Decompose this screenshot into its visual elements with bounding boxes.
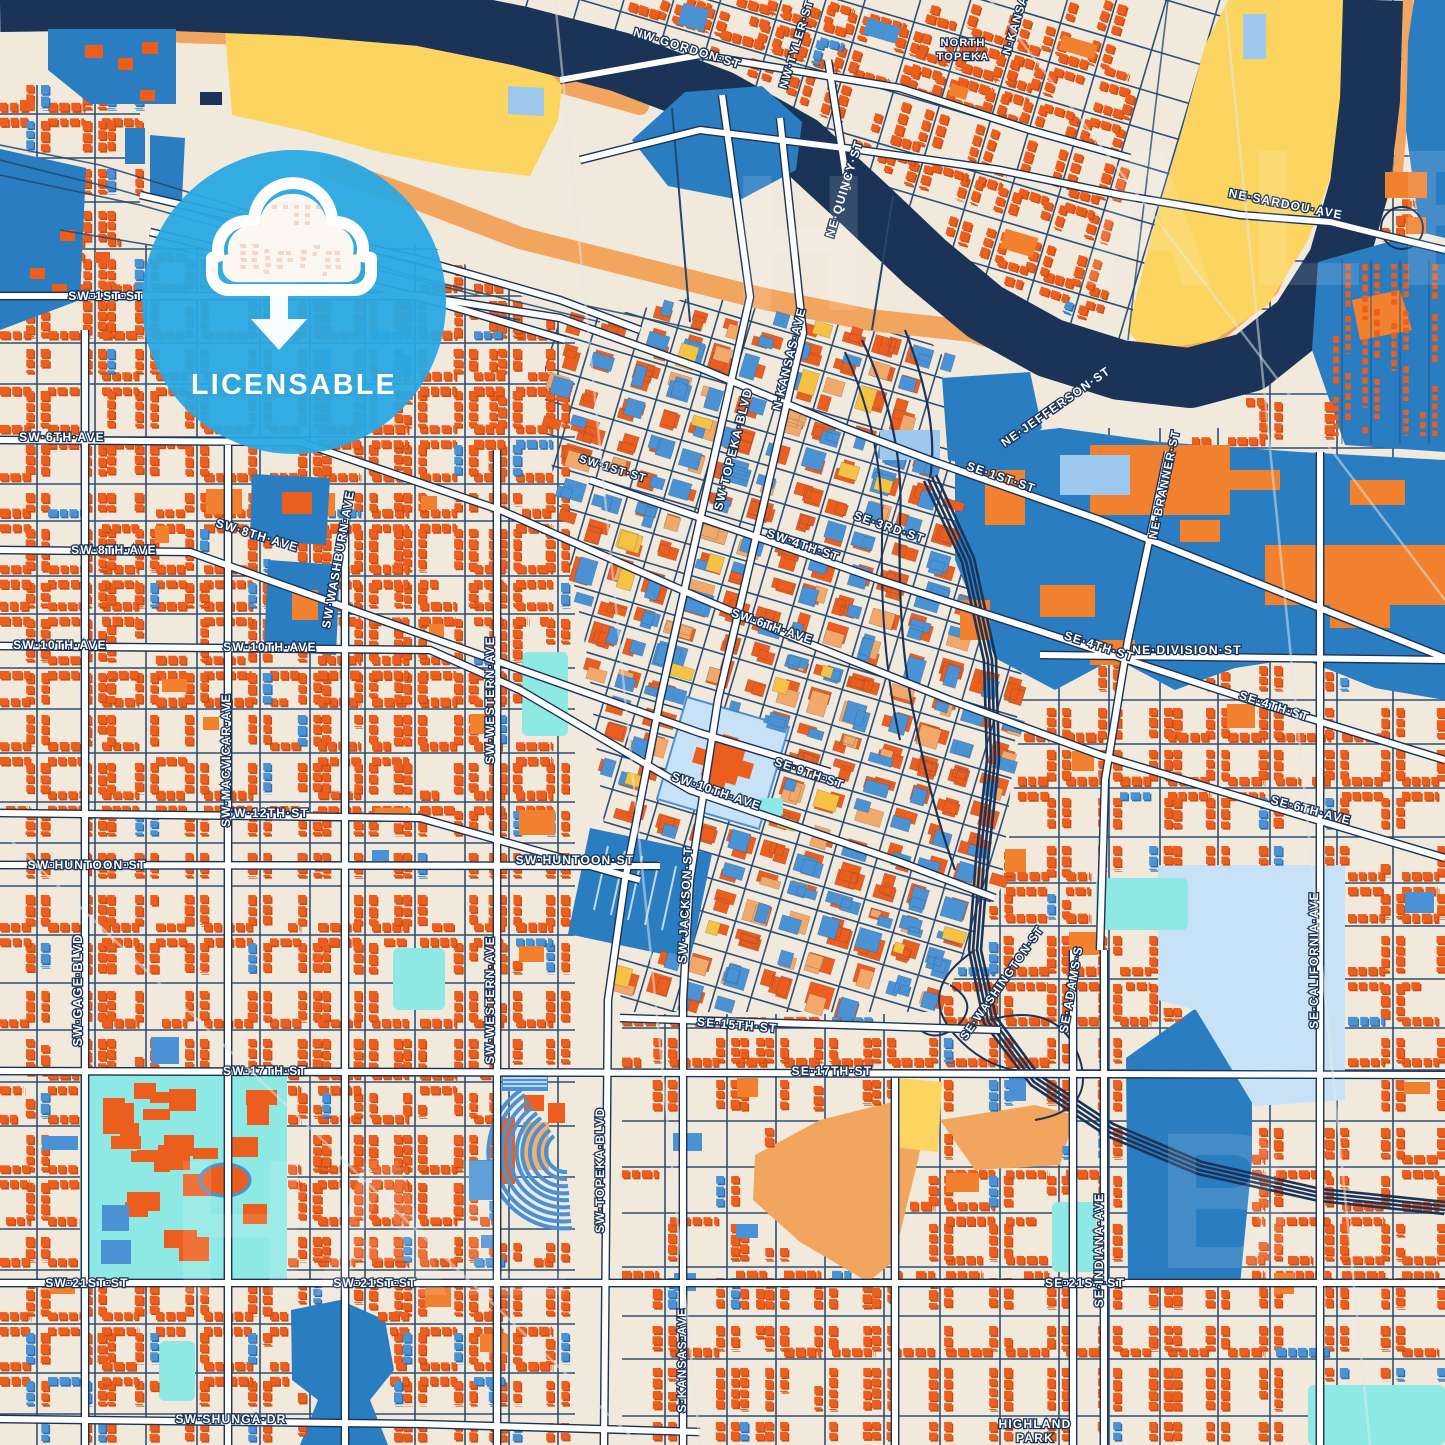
svg-text:SW·HUNTOON·ST: SW·HUNTOON·ST [28, 858, 147, 872]
svg-text:SW·8TH·AVE: SW·8TH·AVE [71, 543, 157, 557]
svg-text:SW·17TH·ST: SW·17TH·ST [223, 1064, 307, 1078]
svg-text:SW·21ST·ST: SW·21ST·ST [45, 1276, 128, 1290]
svg-text:SE·INDIANA·AVE: SE·INDIANA·AVE [1092, 1193, 1106, 1308]
svg-text:PARK: PARK [1016, 1431, 1054, 1445]
svg-text:SW·MACVICAR·AVE: SW·MACVICAR·AVE [219, 693, 233, 827]
svg-text:SW·HUNTOON·ST: SW·HUNTOON·ST [516, 853, 635, 867]
svg-text:HAL: HAL [170, 1119, 571, 1337]
svg-text:H: H [730, 134, 871, 352]
svg-text:SW·TOPEKA·BLVD: SW·TOPEKA·BLVD [593, 1107, 607, 1233]
svg-text:TOPEKA: TOPEKA [937, 51, 990, 63]
svg-text:SE·CALIFORNIA·AVE: SE·CALIFORNIA·AVE [1309, 891, 1321, 1028]
svg-text:SW·6TH·AVE: SW·6TH·AVE [19, 430, 105, 444]
svg-text:SW·WESTERN·AVE: SW·WESTERN·AVE [483, 936, 497, 1064]
svg-text:SE·21ST·ST: SE·21ST·ST [1045, 1276, 1125, 1290]
svg-text:ALB: ALB [1075, 109, 1445, 327]
svg-text:NE·DIVISION·ST: NE·DIVISION·ST [1132, 643, 1241, 657]
svg-text:SW·SHUNGA·DR: SW·SHUNGA·DR [175, 1412, 286, 1426]
svg-text:NORTH: NORTH [940, 37, 985, 49]
svg-text:B: B [1155, 1092, 1296, 1310]
svg-text:HIGHLAND: HIGHLAND [999, 1417, 1072, 1431]
svg-text:SW·WESTERN·AVE: SW·WESTERN·AVE [483, 636, 497, 764]
svg-text:SE·17TH·ST: SE·17TH·ST [792, 1064, 873, 1078]
svg-text:SW·GAGE·BLVD: SW·GAGE·BLVD [71, 934, 85, 1047]
svg-text:SW·10TH·AVE: SW·10TH·AVE [223, 640, 317, 654]
svg-text:LICENSABLE: LICENSABLE [191, 369, 397, 401]
svg-text:SW·12TH·ST: SW·12TH·ST [225, 806, 309, 820]
svg-text:SW·10TH·AVE: SW·10TH·AVE [13, 638, 107, 652]
svg-text:SW·1ST·ST: SW·1ST·ST [68, 289, 143, 303]
